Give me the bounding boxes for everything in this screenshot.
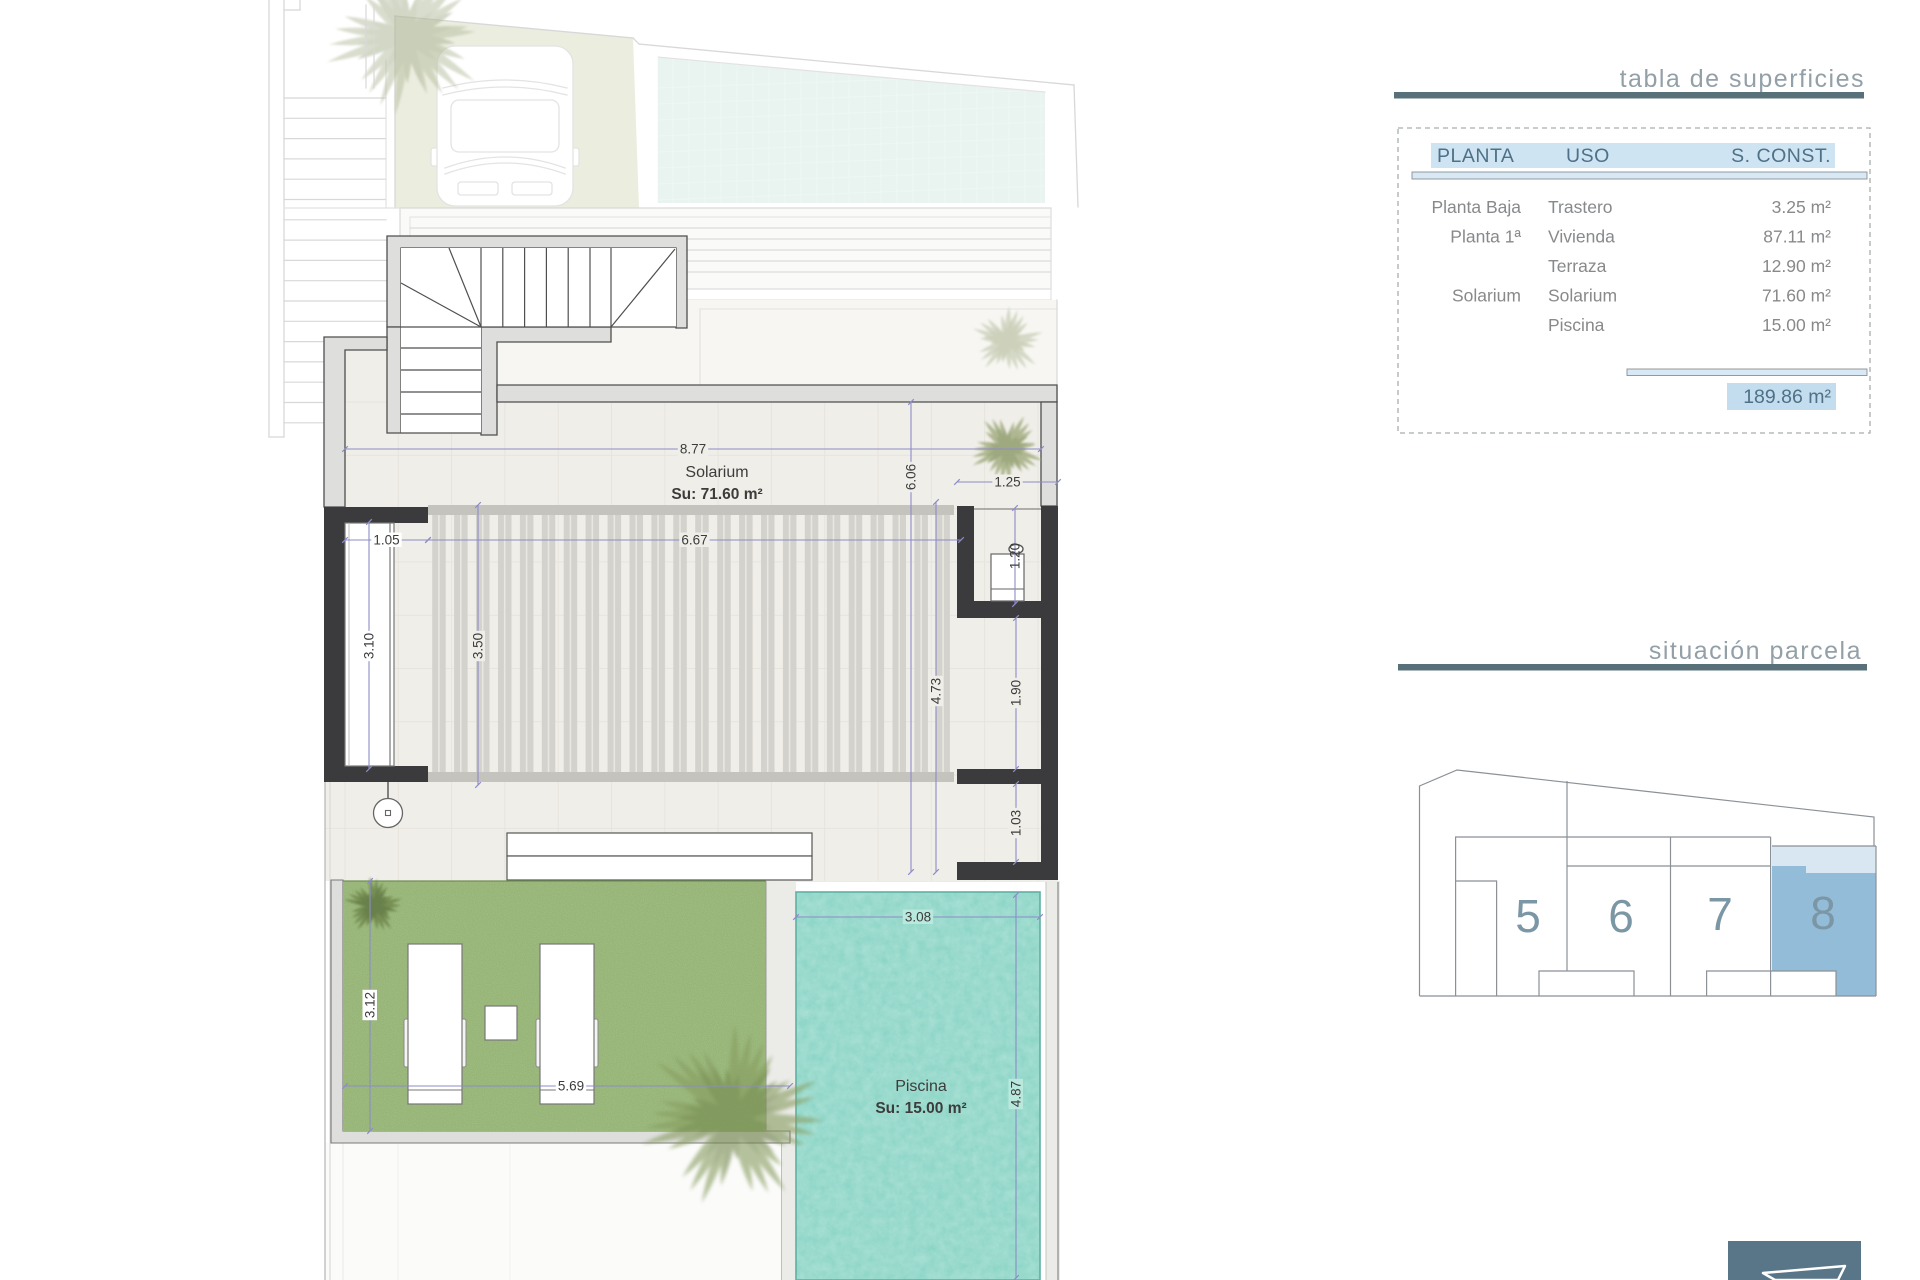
svg-text:189.86 m²: 189.86 m² [1743,386,1831,408]
svg-text:8.77: 8.77 [680,442,706,457]
svg-text:3.50: 3.50 [471,633,486,659]
svg-text:Piscina: Piscina [1548,315,1605,335]
svg-text:Vivienda: Vivienda [1548,227,1615,247]
svg-text:7: 7 [1707,888,1733,940]
svg-text:4.73: 4.73 [929,678,944,704]
svg-text:Solarium: Solarium [1548,286,1617,306]
svg-text:1.03: 1.03 [1009,810,1024,836]
svg-text:5.69: 5.69 [558,1079,584,1094]
svg-text:3.10: 3.10 [362,633,377,659]
svg-text:situación parcela: situación parcela [1649,637,1862,665]
svg-text:S. CONST.: S. CONST. [1731,145,1831,167]
svg-text:6.67: 6.67 [681,533,707,548]
svg-text:1.20: 1.20 [1008,543,1023,569]
svg-text:tabla de superficies: tabla de superficies [1620,65,1865,93]
svg-text:Trastero: Trastero [1548,197,1613,217]
svg-text:3.25 m²: 3.25 m² [1772,197,1831,217]
svg-text:PLANTA: PLANTA [1437,145,1514,167]
svg-text:6.06: 6.06 [904,464,919,490]
svg-text:71.60 m²: 71.60 m² [1762,286,1831,306]
svg-text:Solarium: Solarium [685,464,748,481]
svg-text:3.08: 3.08 [905,910,931,925]
svg-text:Terraza: Terraza [1548,256,1607,276]
svg-text:Su: 71.60 m²: Su: 71.60 m² [671,486,762,503]
svg-text:1.05: 1.05 [373,533,399,548]
svg-text:Solarium: Solarium [1452,286,1521,306]
svg-text:1.90: 1.90 [1009,680,1024,706]
svg-text:Su: 15.00 m²: Su: 15.00 m² [875,1100,966,1117]
svg-text:5: 5 [1515,890,1541,942]
svg-text:Planta 1ª: Planta 1ª [1450,227,1521,247]
svg-text:15.00 m²: 15.00 m² [1762,315,1831,335]
svg-text:87.11 m²: 87.11 m² [1763,227,1831,247]
svg-text:12.90 m²: 12.90 m² [1762,256,1831,276]
svg-text:3.12: 3.12 [363,992,378,1018]
svg-text:6: 6 [1608,890,1634,942]
svg-text:1.25: 1.25 [994,475,1020,490]
svg-text:Planta Baja: Planta Baja [1431,197,1521,217]
svg-text:Piscina: Piscina [895,1078,947,1095]
svg-text:4.87: 4.87 [1009,1081,1024,1107]
svg-text:8: 8 [1810,887,1836,939]
svg-text:USO: USO [1566,145,1610,167]
